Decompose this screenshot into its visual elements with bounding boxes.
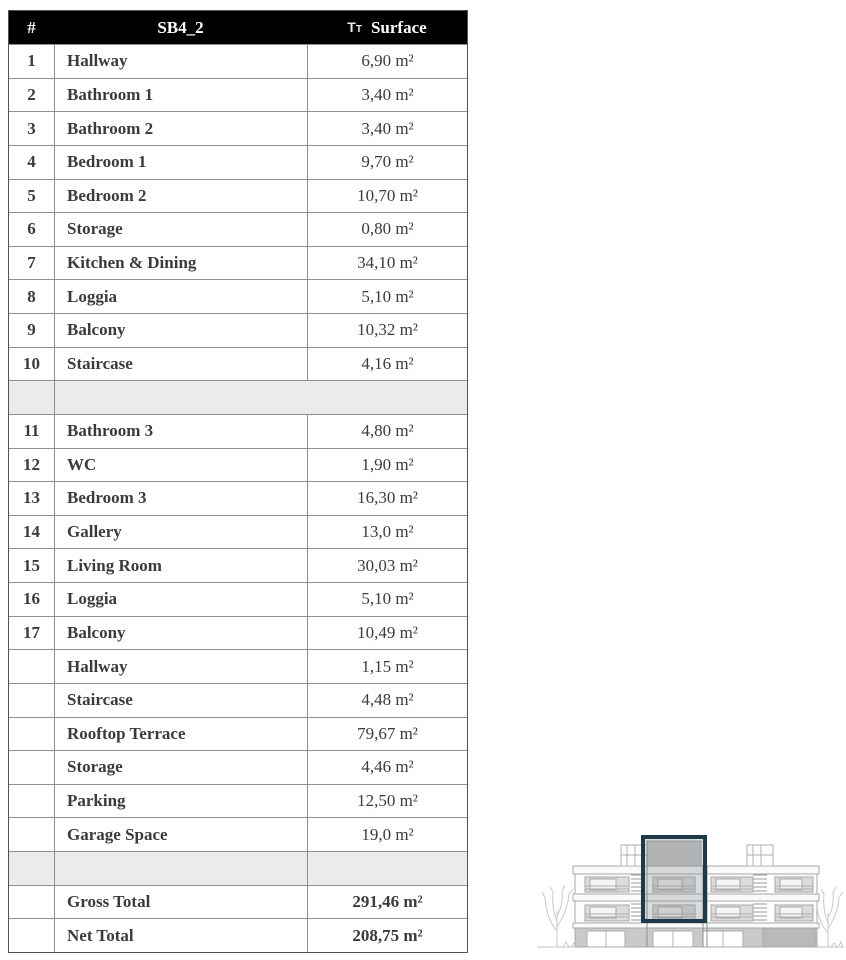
- garage-panel: [763, 928, 815, 947]
- room-name-cell: WC: [54, 449, 307, 482]
- table-row: Rooftop Terrace79,67 m²: [9, 717, 467, 751]
- row-number-cell: 15: [9, 549, 54, 582]
- row-number-cell: 8: [9, 280, 54, 313]
- surface-value-cell: 3,40 m²: [307, 112, 467, 145]
- row-number-cell: 4: [9, 146, 54, 179]
- row-number-cell: [9, 886, 54, 919]
- room-name-cell: Hallway: [54, 45, 307, 78]
- room-name-cell: Bedroom 2: [54, 180, 307, 213]
- row-number-cell: [9, 852, 54, 885]
- surface-value-cell: 9,70 m²: [307, 146, 467, 179]
- surface-value-cell: 6,90 m²: [307, 45, 467, 78]
- table-row: 12WC1,90 m²: [9, 448, 467, 482]
- header-surface-column: TT Surface: [307, 18, 467, 38]
- row-number-cell: 7: [9, 247, 54, 280]
- header-surface-label: Surface: [371, 18, 427, 38]
- surface-value-cell: 4,80 m²: [307, 415, 467, 448]
- room-name-cell: Bedroom 3: [54, 482, 307, 515]
- row-number-cell: 9: [9, 314, 54, 347]
- room-name-cell: Loggia: [54, 280, 307, 313]
- room-name-cell: Rooftop Terrace: [54, 718, 307, 751]
- table-row: 4Bedroom 19,70 m²: [9, 145, 467, 179]
- row-number-cell: 12: [9, 449, 54, 482]
- surface-table-body: 1Hallway6,90 m²2Bathroom 13,40 m²3Bathro…: [9, 44, 467, 952]
- surface-value-cell: 291,46 m²: [307, 886, 467, 919]
- table-row: Gross Total291,46 m²: [9, 885, 467, 919]
- row-number-cell: 5: [9, 180, 54, 213]
- surface-value-cell: 5,10 m²: [307, 280, 467, 313]
- room-name-cell: Net Total: [54, 919, 307, 952]
- surface-value-cell: 19,0 m²: [307, 818, 467, 851]
- room-name-cell: Staircase: [54, 684, 307, 717]
- building-elevation-illustration: [535, 785, 846, 960]
- row-number-cell: 14: [9, 516, 54, 549]
- floor-slab-lower: [573, 923, 819, 928]
- row-number-cell: 6: [9, 213, 54, 246]
- table-row: 10Staircase4,16 m²: [9, 347, 467, 381]
- surface-value-cell: 13,0 m²: [307, 516, 467, 549]
- row-number-cell: 3: [9, 112, 54, 145]
- row-number-cell: [9, 684, 54, 717]
- surface-value-cell: 34,10 m²: [307, 247, 467, 280]
- room-name-cell: Bathroom 1: [54, 79, 307, 112]
- row-number-cell: 17: [9, 617, 54, 650]
- header-number-column: #: [9, 18, 54, 38]
- room-name-cell: Gallery: [54, 516, 307, 549]
- table-row: Garage Space19,0 m²: [9, 817, 467, 851]
- row-number-cell: [9, 818, 54, 851]
- room-name-cell: Hallway: [54, 650, 307, 683]
- spacer-cell: [54, 381, 467, 414]
- surface-value-cell: 10,49 m²: [307, 617, 467, 650]
- table-row: 17Balcony10,49 m²: [9, 616, 467, 650]
- text-property-icon: TT: [347, 20, 362, 35]
- room-name-cell: [54, 852, 307, 885]
- surface-value-cell: 10,70 m²: [307, 180, 467, 213]
- table-header-row: # SB4_2 TT Surface: [9, 11, 467, 44]
- row-number-cell: 1: [9, 45, 54, 78]
- table-row: 16Loggia5,10 m²: [9, 582, 467, 616]
- room-name-cell: Storage: [54, 213, 307, 246]
- surface-value-cell: 0,80 m²: [307, 213, 467, 246]
- room-name-cell: Bedroom 1: [54, 146, 307, 179]
- table-row: 2Bathroom 13,40 m²: [9, 78, 467, 112]
- room-name-cell: Parking: [54, 785, 307, 818]
- table-row: 9Balcony10,32 m²: [9, 313, 467, 347]
- table-row: 1Hallway6,90 m²: [9, 44, 467, 78]
- page: # SB4_2 TT Surface 1Hallway6,90 m²2Bathr…: [0, 0, 846, 960]
- room-name-cell: Balcony: [54, 314, 307, 347]
- surface-value-cell: 3,40 m²: [307, 79, 467, 112]
- surface-value-cell: 1,90 m²: [307, 449, 467, 482]
- room-name-cell: Bathroom 2: [54, 112, 307, 145]
- table-row: 7Kitchen & Dining34,10 m²: [9, 246, 467, 280]
- row-number-cell: [9, 718, 54, 751]
- unit-highlight: [643, 837, 705, 921]
- row-number-cell: [9, 381, 54, 414]
- row-number-cell: 16: [9, 583, 54, 616]
- room-name-cell: Loggia: [54, 583, 307, 616]
- row-number-cell: 2: [9, 79, 54, 112]
- room-name-cell: Bathroom 3: [54, 415, 307, 448]
- header-unit-title: SB4_2: [54, 18, 307, 38]
- room-name-cell: Kitchen & Dining: [54, 247, 307, 280]
- room-name-cell: Balcony: [54, 617, 307, 650]
- room-name-cell: Gross Total: [54, 886, 307, 919]
- table-row: Storage4,46 m²: [9, 750, 467, 784]
- surface-value-cell: 12,50 m²: [307, 785, 467, 818]
- surface-value-cell: 79,67 m²: [307, 718, 467, 751]
- room-name-cell: Storage: [54, 751, 307, 784]
- table-row: 13Bedroom 316,30 m²: [9, 481, 467, 515]
- table-row: Net Total208,75 m²: [9, 918, 467, 952]
- room-name-cell: Staircase: [54, 348, 307, 381]
- table-row: 6Storage0,80 m²: [9, 212, 467, 246]
- surface-value-cell: 16,30 m²: [307, 482, 467, 515]
- table-row: 3Bathroom 23,40 m²: [9, 111, 467, 145]
- spacer-row: [9, 851, 467, 885]
- surface-value-cell: 30,03 m²: [307, 549, 467, 582]
- surface-value-cell: 208,75 m²: [307, 919, 467, 952]
- table-row: 15Living Room30,03 m²: [9, 548, 467, 582]
- table-row: Parking12,50 m²: [9, 784, 467, 818]
- spacer-row: [9, 380, 467, 414]
- room-name-cell: Living Room: [54, 549, 307, 582]
- surface-table: # SB4_2 TT Surface 1Hallway6,90 m²2Bathr…: [8, 10, 468, 953]
- surface-value-cell: 1,15 m²: [307, 650, 467, 683]
- row-number-cell: [9, 919, 54, 952]
- table-row: Staircase4,48 m²: [9, 683, 467, 717]
- surface-value-cell: 4,48 m²: [307, 684, 467, 717]
- table-row: 11Bathroom 34,80 m²: [9, 414, 467, 448]
- surface-value-cell: 5,10 m²: [307, 583, 467, 616]
- row-number-cell: [9, 785, 54, 818]
- table-row: 5Bedroom 210,70 m²: [9, 179, 467, 213]
- tree-left: [542, 885, 573, 947]
- room-name-cell: Garage Space: [54, 818, 307, 851]
- surface-value-cell: 4,16 m²: [307, 348, 467, 381]
- row-number-cell: 11: [9, 415, 54, 448]
- row-number-cell: [9, 751, 54, 784]
- row-number-cell: 13: [9, 482, 54, 515]
- surface-value-cell: 4,46 m²: [307, 751, 467, 784]
- rooftop-railing-right: [747, 845, 773, 866]
- surface-value-cell: 10,32 m²: [307, 314, 467, 347]
- table-row: 14Gallery13,0 m²: [9, 515, 467, 549]
- row-number-cell: [9, 650, 54, 683]
- row-number-cell: 10: [9, 348, 54, 381]
- table-row: Hallway1,15 m²: [9, 649, 467, 683]
- surface-value-cell: [307, 852, 467, 885]
- table-row: 8Loggia5,10 m²: [9, 279, 467, 313]
